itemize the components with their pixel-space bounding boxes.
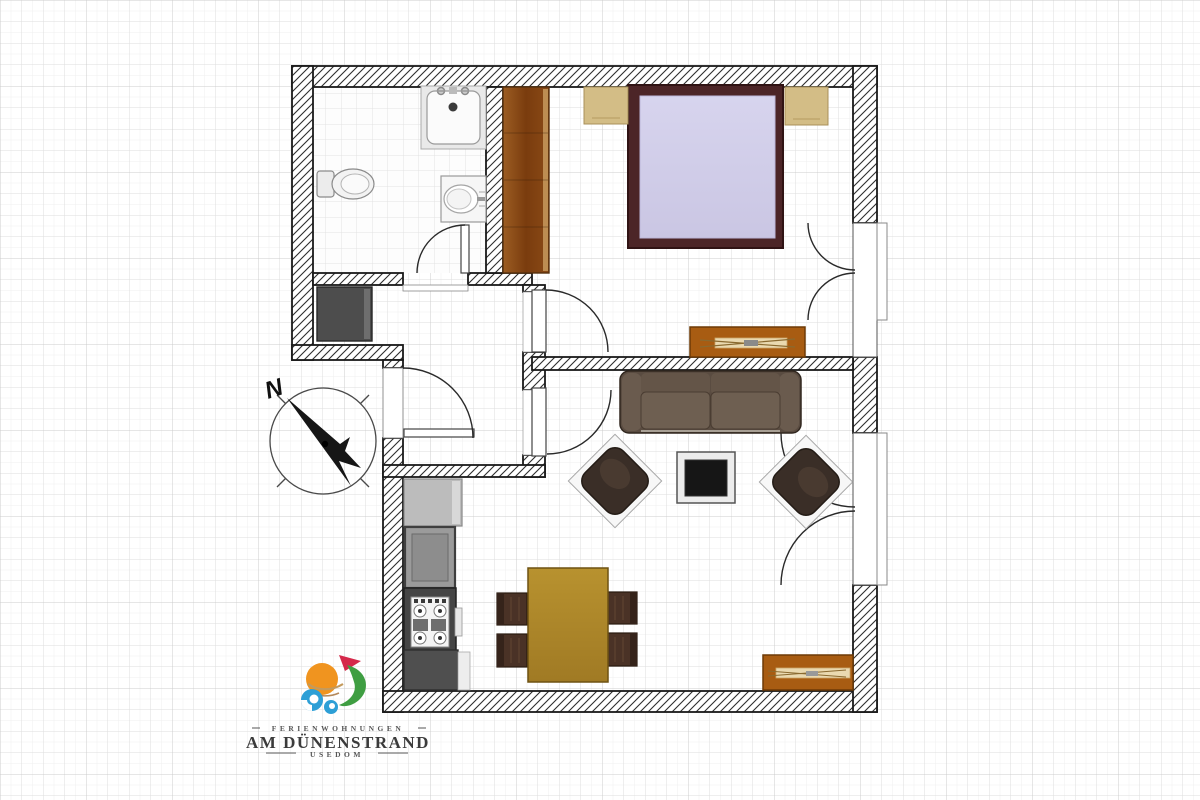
wall-bathroom-south-left [313,273,403,285]
bedroom-door-leaf [532,290,546,352]
logo-tagline-bottom: USEDOM [310,750,364,759]
oven-handle [455,608,462,636]
wall-exterior-step [292,345,403,360]
shower-drain [449,103,458,112]
compass-center-dot [322,441,328,447]
sideboard-bottom [763,655,853,690]
wall-exterior-right-lower [853,585,877,712]
base-counter [404,650,470,690]
entrance-opening [383,368,403,438]
wall-exterior-right-middle [853,357,877,433]
sofa-cushion-left [641,392,710,429]
double-bed [628,85,783,248]
wall-exterior-top [292,66,877,87]
balcony-door-sill [877,433,887,585]
stove [404,588,462,652]
wall-bathroom-south-right [468,273,532,285]
dining-chair [607,592,637,624]
nightstand-right [785,87,828,125]
bathroom-door-sill [403,285,468,291]
tv-lowboard [690,327,805,357]
sofa [620,371,801,433]
sofa-cushion-right [711,392,780,429]
wall-west-above-entrance [383,360,403,368]
shower-faucet [437,87,469,95]
nightstand-left [584,87,628,124]
hall-closet [317,287,372,341]
dining-chair [607,633,637,666]
sink-cabinet [405,527,455,588]
window-frame [853,223,877,357]
wardrobe [503,87,549,273]
bathroom-door-leaf [461,225,469,273]
dining-table [528,568,608,682]
wall-exterior-right-upper [853,66,877,223]
sofa-armrest-right [779,373,799,431]
coffee-table [677,452,735,503]
wall-bedroom-living-divider [532,357,853,370]
shower [421,86,486,149]
wall-west-lower [383,438,403,712]
living-door-leaf [532,388,546,456]
tall-cabinet [404,479,462,526]
washbasin [441,176,486,222]
floor-plan: N FERIENWOHNUNGEN AM DÜNENSTRAND USEDOM [0,0,1200,800]
mattress [640,96,775,238]
dining-chair [497,634,527,667]
sofa-armrest-left [622,373,642,431]
balcony-door-frame [853,433,877,585]
wall-exterior-bottom [383,691,877,712]
dining-chair [497,593,527,625]
wall-bathroom-east [486,87,503,273]
wall-exterior-left [292,66,313,360]
toilet [317,169,374,199]
floor-plan-canvas: N FERIENWOHNUNGEN AM DÜNENSTRAND USEDOM [0,0,1200,800]
basin-faucet [477,197,485,201]
window-sill [877,223,887,320]
logo-tagline-top: FERIENWOHNUNGEN [272,724,405,733]
entrance-door-leaf [404,429,474,437]
wall-kitchen-north [383,465,545,477]
